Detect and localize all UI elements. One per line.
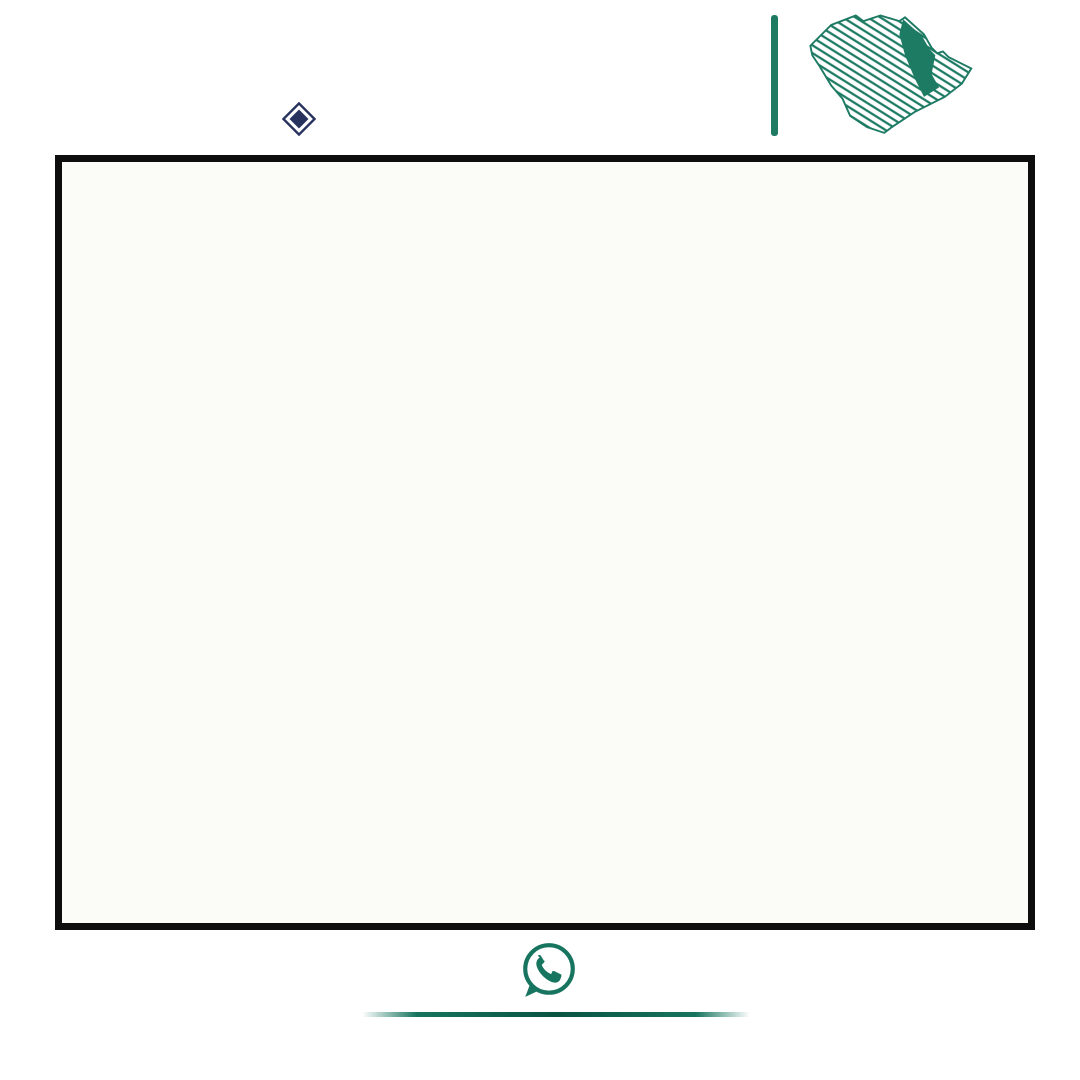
authority-diamond-icon: [282, 102, 316, 136]
plot-map: [55, 155, 1035, 930]
brand-logo: [468, 40, 760, 42]
authority-logo: [278, 102, 316, 136]
real-estate-flyer: [0, 0, 1080, 1080]
plot-map-svg: [62, 162, 1028, 923]
qr-code-snapchat: [876, 928, 1068, 1076]
whatsapp-icon: [518, 940, 580, 1002]
qr-code-whatsapp: [57, 932, 253, 1078]
brand-divider-bar: [771, 15, 778, 136]
fal-license-logo: [296, 60, 358, 65]
contact-row: [330, 940, 780, 1002]
footer-divider: [362, 1012, 750, 1017]
saudi-arabia-map-logo: [788, 6, 988, 148]
